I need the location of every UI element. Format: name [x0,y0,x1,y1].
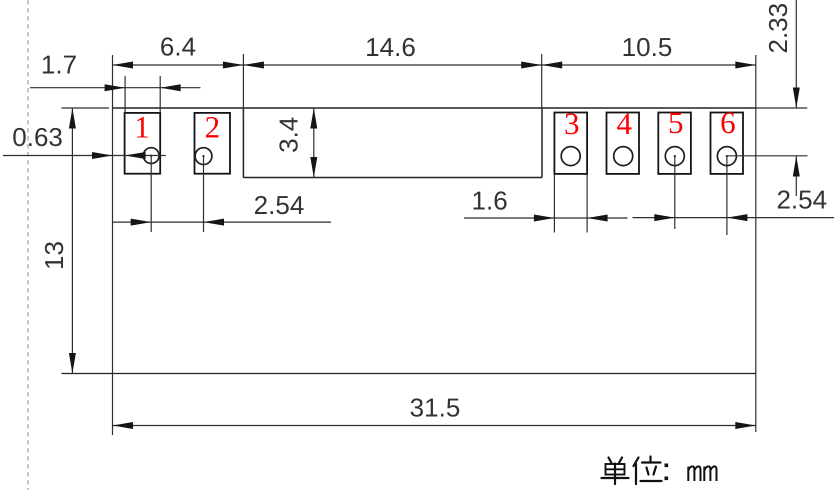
svg-text:2.54: 2.54 [776,185,827,215]
svg-text:1.7: 1.7 [41,49,77,79]
svg-text:31.5: 31.5 [410,392,461,422]
svg-text:2.33: 2.33 [763,3,793,54]
svg-text:1.6: 1.6 [472,185,508,215]
svg-text:14.6: 14.6 [365,32,416,62]
svg-text:3: 3 [564,106,580,141]
svg-text:4: 4 [616,106,632,141]
svg-text:13: 13 [39,241,69,270]
svg-text:10.5: 10.5 [622,32,673,62]
svg-text:1: 1 [134,110,150,145]
svg-text:6: 6 [720,105,736,140]
svg-text:2: 2 [205,110,221,145]
svg-text:6.4: 6.4 [160,31,196,61]
svg-text:2.54: 2.54 [254,190,305,220]
svg-text:3.4: 3.4 [273,117,303,153]
svg-text:0.63: 0.63 [12,122,63,152]
svg-text:5: 5 [668,105,684,140]
